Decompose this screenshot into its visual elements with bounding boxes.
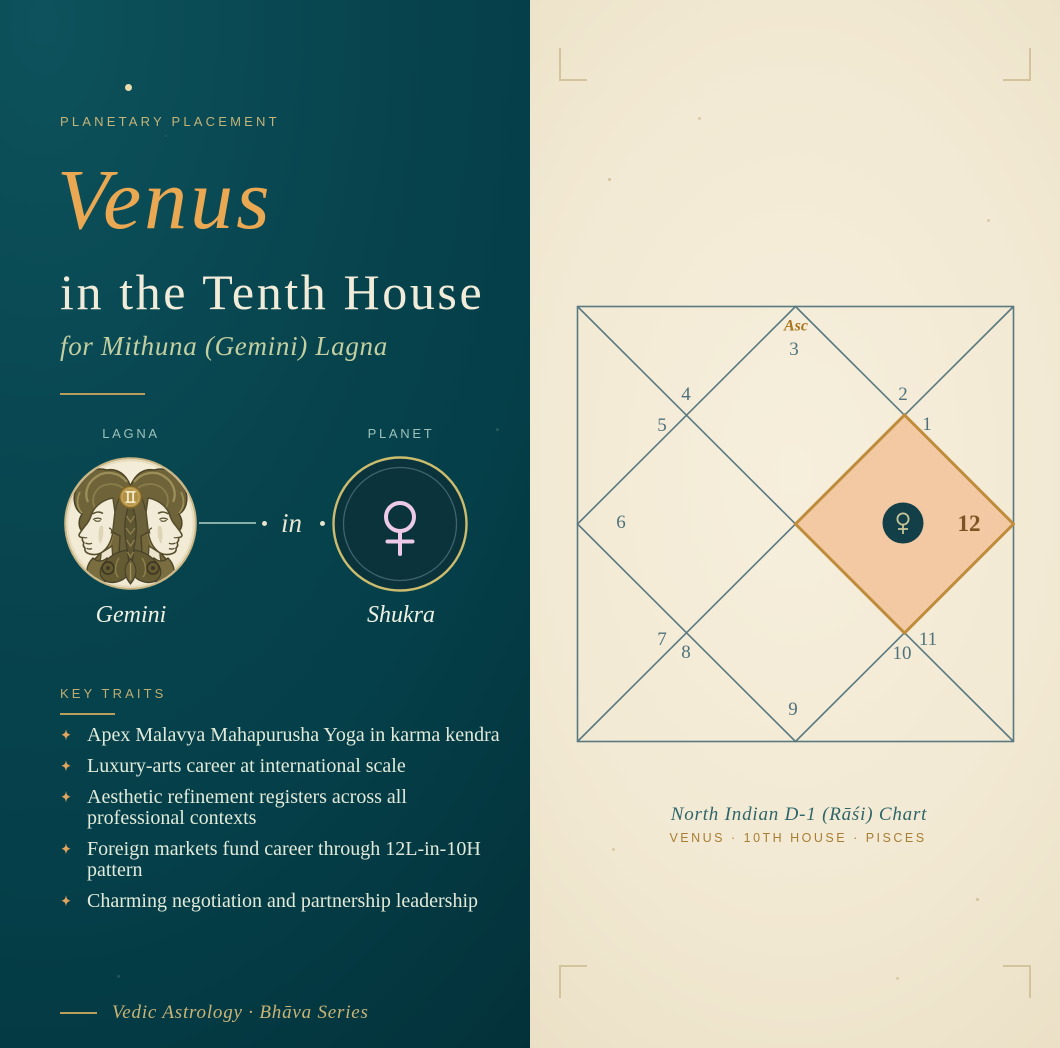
svg-text:3: 3 <box>789 339 799 360</box>
svg-text:5: 5 <box>657 415 667 436</box>
svg-text:1: 1 <box>922 414 932 435</box>
svg-text:11: 11 <box>919 629 937 650</box>
svg-text:12: 12 <box>958 511 981 536</box>
svg-text:2: 2 <box>898 384 908 405</box>
svg-text:10: 10 <box>893 643 912 664</box>
svg-text:6: 6 <box>616 512 626 533</box>
svg-text:4: 4 <box>681 384 691 405</box>
svg-text:Asc: Asc <box>783 318 808 335</box>
svg-text:9: 9 <box>788 699 798 720</box>
svg-text:7: 7 <box>657 629 667 650</box>
svg-text:8: 8 <box>681 642 691 663</box>
